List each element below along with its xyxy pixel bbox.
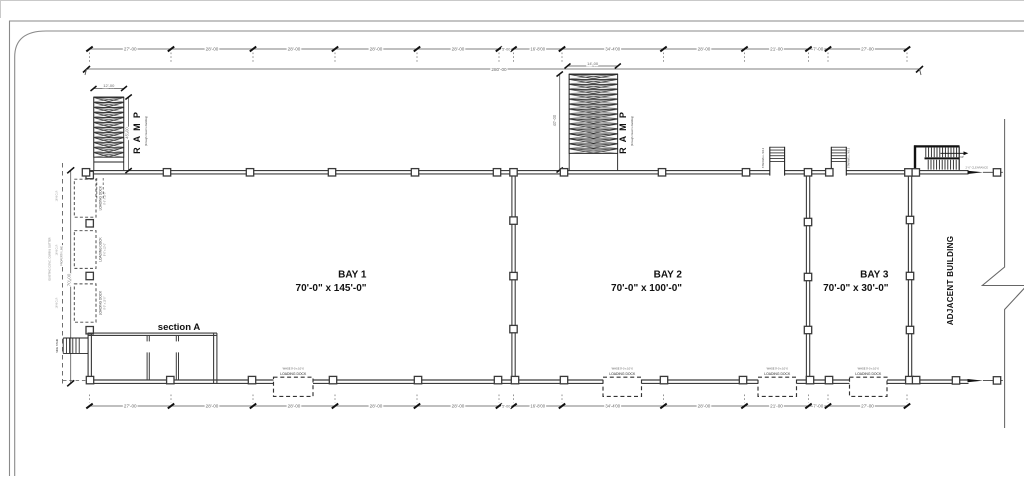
svg-text:28'-00: 28'-00 [288,47,301,52]
svg-text:2'-0" CLEARANCE: 2'-0" CLEARANCE [966,165,989,169]
svg-text:16'-8 CLR: 16'-8 CLR [56,297,59,308]
svg-text:BAY 3: BAY 3 [860,270,889,281]
svg-text:34'-4'00: 34'-4'00 [605,404,620,409]
svg-text:70'-0" x 100'-0": 70'-0" x 100'-0" [611,283,682,294]
svg-text:5'-00: 5'-00 [502,48,510,52]
svg-text:WHSE 9'-0 x 10'-0: WHSE 9'-0 x 10'-0 [858,367,880,371]
svg-text:16'-8'00: 16'-8'00 [530,404,545,409]
svg-text:LOADING DOCK: LOADING DOCK [855,372,882,376]
svg-text:LOADING DOCK: LOADING DOCK [280,372,307,376]
svg-text:LOADING DOCK: LOADING DOCK [98,290,102,315]
svg-text:28'-00: 28'-00 [288,404,301,409]
svg-text:27'-00: 27'-00 [124,47,137,52]
svg-text:LOADING DOCK: LOADING DOCK [764,372,791,376]
svg-text:PROPERTY LINE: PROPERTY LINE [60,246,63,266]
svg-text:BAY 1: BAY 1 [338,270,367,281]
svg-text:R A M P: R A M P [132,111,142,154]
svg-text:16'-8'00: 16'-8'00 [530,47,545,52]
svg-text:UP: UP [960,156,964,159]
svg-text:14'-00: 14'-00 [587,61,599,66]
svg-text:27'-00: 27'-00 [861,404,874,409]
svg-text:28'-00: 28'-00 [206,47,219,52]
svg-text:34'-4'00: 34'-4'00 [605,47,620,52]
svg-text:(through travel to building): (through travel to building) [144,116,148,146]
svg-text:21'-00: 21'-00 [770,404,783,409]
svg-text:7'-00: 7'-00 [813,404,824,409]
svg-text:45'-00: 45'-00 [124,127,129,139]
svg-text:21'-00: 21'-00 [770,47,783,52]
svg-text:STAIRWELL NO.3: STAIRWELL NO.3 [848,147,851,168]
svg-text:section A: section A [158,322,201,333]
svg-text:8'-0" x 12'-0": 8'-0" x 12'-0" [104,243,106,256]
svg-text:40'-00: 40'-00 [552,114,557,126]
svg-text:280'-00: 280'-00 [491,67,507,72]
svg-text:WHSE 9'-0 x 10'-0: WHSE 9'-0 x 10'-0 [767,367,789,371]
svg-text:SIDE STAIR: SIDE STAIR [55,339,59,353]
svg-text:ADJACENT BUILDING: ADJACENT BUILDING [946,236,955,326]
svg-text:70'-00: 70'-00 [67,273,72,286]
svg-text:WHSE 9'-0 x 10'-0: WHSE 9'-0 x 10'-0 [283,367,305,371]
svg-text:28'-00: 28'-00 [370,47,383,52]
svg-text:8'-0" x 12'-0": 8'-0" x 12'-0" [104,192,106,205]
svg-text:LOADING DOCK: LOADING DOCK [609,372,636,376]
svg-text:12'-00: 12'-00 [103,83,115,88]
svg-text:28'-00: 28'-00 [206,404,219,409]
svg-text:8'-0" x 12'-0": 8'-0" x 12'-0" [104,296,106,309]
svg-text:27'-00: 27'-00 [124,404,137,409]
svg-text:70'-0" x 30'-0": 70'-0" x 30'-0" [823,283,889,294]
svg-text:16'-8 CLR: 16'-8 CLR [56,190,59,201]
svg-text:LOADING DOCK: LOADING DOCK [98,236,102,261]
svg-text:28'-00: 28'-00 [698,404,711,409]
svg-text:LOADING DOCK: LOADING DOCK [98,185,102,210]
svg-text:16'-8 CLR: 16'-8 CLR [56,244,59,255]
svg-text:28'-00: 28'-00 [698,47,711,52]
svg-text:(through travel to building): (through travel to building) [630,116,634,146]
svg-text:EXISTING CONC. CURB & GUTTER: EXISTING CONC. CURB & GUTTER [47,237,51,280]
svg-text:7'-00: 7'-00 [813,47,824,52]
svg-text:BAY 2: BAY 2 [654,270,683,281]
svg-text:28'-00: 28'-00 [370,404,383,409]
svg-text:28'-00: 28'-00 [452,404,465,409]
svg-text:WHSE 9'-0 x 10'-0: WHSE 9'-0 x 10'-0 [612,367,634,371]
svg-text:STAIRWELL NO.2: STAIRWELL NO.2 [762,147,765,168]
svg-text:70'-0" x 145'-0": 70'-0" x 145'-0" [296,283,367,294]
svg-text:5'-00: 5'-00 [502,405,510,409]
svg-text:28'-00: 28'-00 [452,47,465,52]
svg-text:R A M P: R A M P [618,111,628,154]
svg-text:27'-00: 27'-00 [861,47,874,52]
